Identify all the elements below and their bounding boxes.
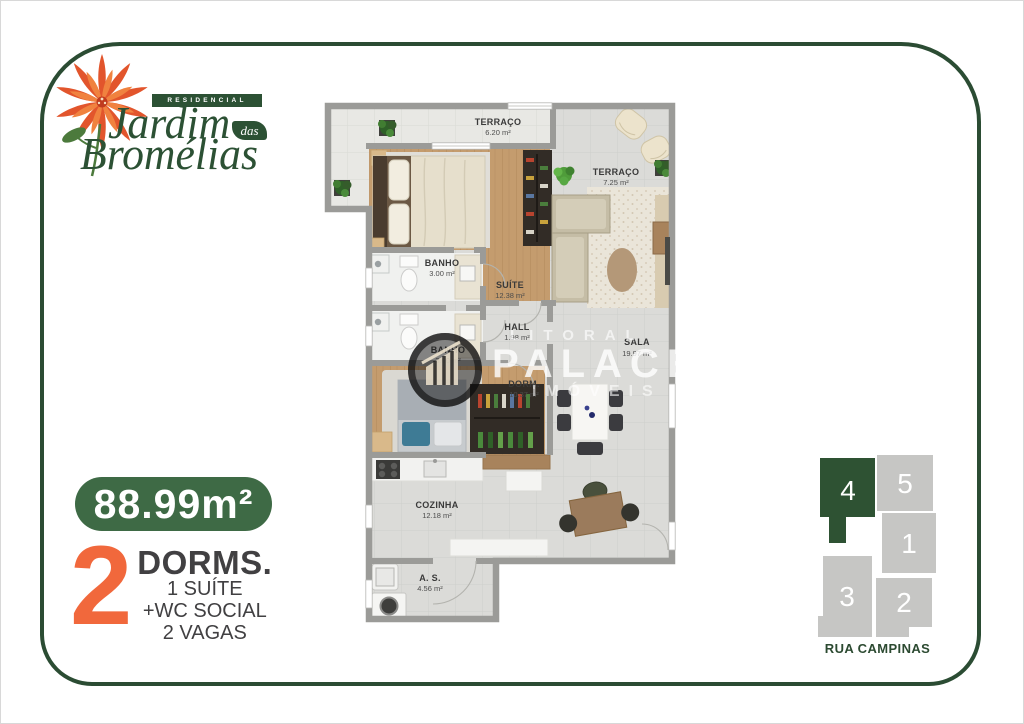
room-area-as: 4.56 m² [417, 584, 443, 593]
floor-plan: TERRAÇO 6.20 m² TERRAÇO 7.25 m² BANHO 3.… [320, 98, 695, 643]
keyplan-number-1: 1 [901, 528, 917, 559]
room-area-banho-social: 3.00 m² [435, 356, 461, 365]
brand-name-line2: Bromélias [80, 127, 258, 180]
street-label: RUA CAMPINAS [795, 641, 960, 656]
terrace-sliding-door [665, 237, 670, 285]
dorms-label: DORMS. [137, 548, 272, 578]
keyplan-number-4: 4 [840, 475, 856, 506]
keyplan-number-3: 3 [839, 581, 855, 612]
room-area-cozinha: 12.18 m² [422, 511, 452, 520]
room-label-terraco-top: TERRAÇO [475, 117, 522, 127]
room-area-dorm: 10.37 m² [509, 390, 539, 399]
dorms-count: 2 [70, 536, 132, 636]
room-label-suite: SUÍTE [496, 280, 524, 290]
detail-vagas: 2 VAGAS [137, 622, 272, 644]
room-label-banho-social: BANHO [431, 345, 466, 355]
detail-suite: 1 SUÍTE [137, 578, 272, 600]
room-area-suite: 12.38 m² [495, 291, 525, 300]
room-label-dorm: DORM. [508, 379, 540, 389]
keyplan-number-2: 2 [896, 587, 912, 618]
room-label-terraco-right: TERRAÇO [593, 167, 640, 177]
room-label-as: A. S. [419, 573, 441, 583]
room-area-terraco-top: 6.20 m² [485, 128, 511, 137]
room-label-sala: SALA [624, 337, 650, 347]
room-area-banho-suite: 3.00 m² [429, 269, 455, 278]
flyer-page: RESIDENCIAL Jardim das Bromélias [0, 0, 1024, 724]
detail-wc: +WC SOCIAL [137, 600, 272, 622]
room-label-banho-suite: BANHO [425, 258, 460, 268]
unit-keyplan: 4 5 1 3 2 [810, 448, 980, 648]
room-area-sala: 19.97 m² [622, 349, 652, 358]
room-label-cozinha: COZINHA [415, 500, 458, 510]
room-area-terraco-right: 7.25 m² [603, 178, 629, 187]
keyplan-number-5: 5 [897, 468, 913, 499]
dorms-summary: 2 DORMS. 1 SUÍTE +WC SOCIAL 2 VAGAS [70, 536, 272, 644]
room-label-hall: HALL [504, 322, 529, 332]
room-area-hall: 1.98 m² [504, 333, 530, 342]
suite-furniture [370, 150, 552, 250]
